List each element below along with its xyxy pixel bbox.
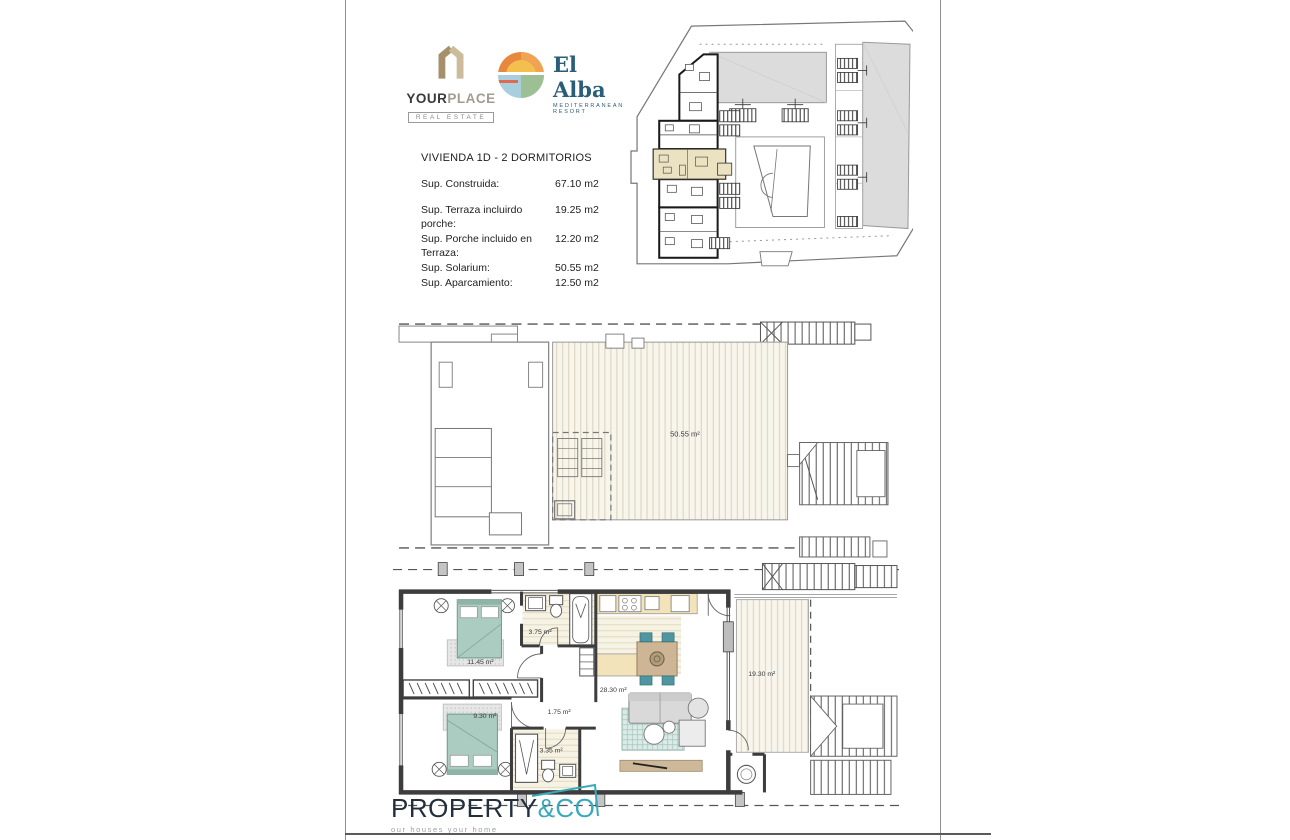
- bedroom2: 9.30 m²: [432, 704, 512, 776]
- footer-divider: [345, 833, 991, 835]
- terrace-area-label: 19.30 m²: [748, 671, 776, 678]
- side-table-round: [688, 698, 708, 718]
- site-entrance: [760, 252, 792, 266]
- info-row: Sup. Solarium:50.55 m2: [421, 261, 656, 276]
- bedroom1: 11.45 m²: [434, 599, 514, 666]
- stove-icon: [619, 596, 641, 612]
- unit-title: VIVIENDA 1D - 2 DORMITORIOS: [421, 152, 656, 164]
- sofa-icon: [629, 693, 691, 723]
- armchair: [679, 720, 705, 746]
- building-top: [710, 52, 827, 102]
- bath2-area-label: 3.35 m²: [540, 747, 564, 754]
- utility: [737, 765, 755, 783]
- stairs-bottom-right: [800, 537, 887, 557]
- info-row: Sup. Porche incluido en Terraza:12.20 m2: [421, 232, 656, 261]
- bed-icon: [447, 714, 497, 774]
- property-info: VIVIENDA 1D - 2 DORMITORIOS Sup. Constru…: [421, 152, 656, 290]
- yourplace-wordmark: YOURPLACE: [404, 91, 498, 106]
- pool: [736, 137, 825, 228]
- hall: 1.75 m²: [548, 648, 594, 716]
- elalba-sun-icon: [496, 50, 546, 100]
- terrace: 19.30 m²: [736, 600, 810, 753]
- stairs-top: [760, 322, 870, 344]
- shower-icon: [515, 734, 537, 782]
- apartment-plan: 19.30 m² 11.45 m²: [389, 561, 903, 810]
- info-row: Sup. Aparcamiento:12.50 m2: [421, 276, 656, 291]
- stairs-right: [788, 443, 888, 505]
- yourplace-logo: YOURPLACE REAL ESTATE: [404, 40, 498, 124]
- stairs-top: [734, 564, 897, 598]
- propertyco-wordmark: PROPERTY&CO: [391, 793, 595, 824]
- bed2-area-label: 9.30 m²: [473, 713, 497, 720]
- stairs-right: [811, 696, 897, 794]
- yourplace-subtitle: REAL ESTATE: [408, 112, 494, 123]
- coffee-table-small: [663, 721, 675, 733]
- solarium-deck: 50.55 m²: [553, 334, 788, 520]
- lower-floor-outline: [431, 342, 548, 545]
- living-area-label: 28.30 m²: [600, 687, 628, 694]
- highlighted-unit: [653, 149, 732, 179]
- solarium-area-label: 50.55 m²: [670, 430, 700, 439]
- hall-area-label: 1.75 m²: [548, 709, 572, 716]
- bathtub-icon: [570, 594, 592, 646]
- elalba-wordmark: El Alba MEDITERRANEAN RESORT: [553, 52, 636, 115]
- wardrobes: [403, 680, 538, 697]
- coffee-table: [644, 724, 664, 744]
- info-row: Sup. Construida:67.10 m2: [421, 177, 656, 192]
- yourplace-house-icon: [423, 40, 479, 84]
- info-row: Sup. Terraza incluirdo porche:19.25 m2: [421, 203, 656, 232]
- roof-line-icon: [531, 784, 601, 818]
- living-room: [620, 693, 708, 771]
- elalba-logo: El Alba MEDITERRANEAN RESORT: [496, 50, 636, 105]
- bed1-area-label: 11.45 m²: [467, 659, 494, 666]
- bed-icon: [457, 600, 501, 658]
- site-plan: [629, 12, 913, 286]
- building-right: [835, 42, 910, 228]
- propertyco-logo: PROPERTY&CO our houses your home: [391, 793, 595, 834]
- document-sheet: YOURPLACE REAL ESTATE El Alba MEDITERRAN…: [345, 0, 941, 840]
- solarium-plan: 50.55 m²: [391, 314, 895, 559]
- tv-unit-icon: [620, 760, 702, 771]
